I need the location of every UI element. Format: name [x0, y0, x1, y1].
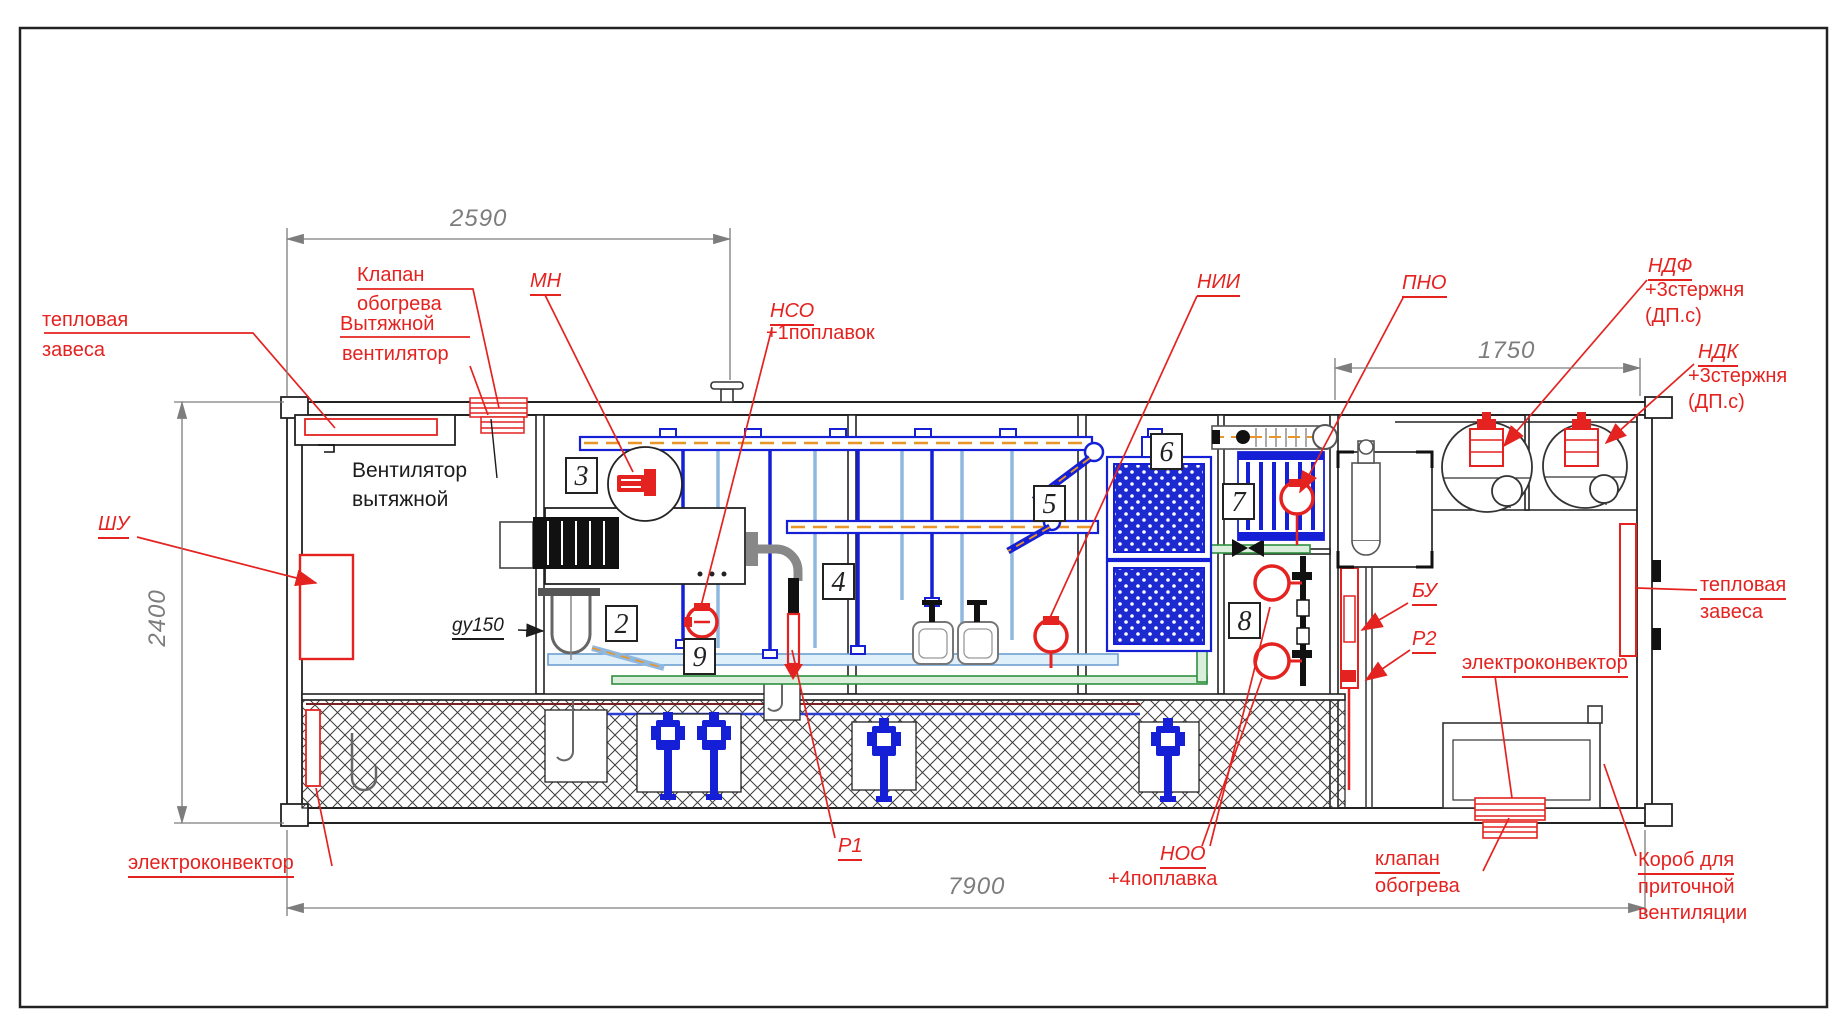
- tag-nii: НИИ: [1197, 272, 1240, 297]
- tag-pno: ПНО: [1402, 273, 1447, 298]
- label-floor-valve-1: клапан: [1375, 849, 1440, 874]
- section-7: 7: [1222, 483, 1255, 520]
- drawing-canvas: 2590 1750 7900 2400 тепловая завеса Клап…: [0, 0, 1847, 1035]
- dim-2400: 2400: [145, 563, 171, 673]
- tag-mn: МН: [530, 271, 561, 296]
- section-8: 8: [1228, 602, 1261, 639]
- label-duct-3: вентиляции: [1638, 903, 1747, 925]
- tag-ndf: НДФ: [1648, 256, 1692, 281]
- tag-noo: НОО: [1160, 844, 1206, 869]
- label-heating-valve-top-1: Клапан: [357, 265, 424, 287]
- label-heat-curtain-left-2: завеса: [42, 340, 105, 362]
- label-convector-left: электроконвектор: [128, 853, 294, 878]
- label-exhaust-fan-red-2: вентилятор: [342, 344, 449, 366]
- section-3: 3: [565, 457, 598, 494]
- section-9: 9: [683, 638, 716, 675]
- tag-shu: ШУ: [98, 514, 129, 539]
- tag-bu: БУ: [1412, 581, 1437, 606]
- tag-gy150: gy150: [452, 616, 504, 640]
- mn-pump: [608, 447, 682, 521]
- label-convector-right: электроконвектор: [1462, 653, 1628, 678]
- label-exhaust-fan-red-1: Вытяжной: [340, 314, 434, 336]
- pno-heater: [1212, 425, 1337, 449]
- label-heat-curtain-right-1: тепловая: [1700, 575, 1786, 600]
- tag-ndf-note2: (ДП.с): [1645, 306, 1702, 328]
- tag-ndk: НДК: [1698, 342, 1738, 367]
- section-5: 5: [1033, 485, 1066, 522]
- convector-left-device: [306, 710, 320, 786]
- pressure-tank: [1338, 440, 1432, 567]
- dim-2590: 2590: [450, 206, 507, 232]
- tag-ndk-note1: +3стержня: [1688, 366, 1787, 388]
- linework-layer: [0, 0, 1847, 1035]
- dim-7900: 7900: [948, 874, 1005, 900]
- label-duct-1: Короб для: [1638, 850, 1734, 875]
- dim-1750: 1750: [1478, 338, 1535, 364]
- label-heat-curtain-left-1: тепловая: [42, 310, 128, 332]
- tag-noo-note: +4поплавка: [1108, 869, 1217, 891]
- label-heat-curtain-right-2: завеса: [1700, 602, 1763, 624]
- section-4: 4: [822, 563, 855, 600]
- label-duct-2: приточной: [1638, 877, 1735, 899]
- tag-nso-note: +1поплавок: [766, 323, 875, 345]
- section-2: 2: [605, 605, 638, 642]
- tag-ndf-note1: +3стержня: [1645, 280, 1744, 302]
- section-6: 6: [1150, 433, 1183, 470]
- tag-ndk-note2: (ДП.с): [1688, 392, 1745, 414]
- tag-p1: Р1: [838, 836, 862, 861]
- label-exhaust-fan-black-2: вытяжной: [352, 489, 448, 512]
- label-floor-valve-2: обогрева: [1375, 876, 1460, 898]
- tag-p2: Р2: [1412, 629, 1436, 654]
- label-exhaust-fan-black-1: Вентилятор: [352, 460, 467, 483]
